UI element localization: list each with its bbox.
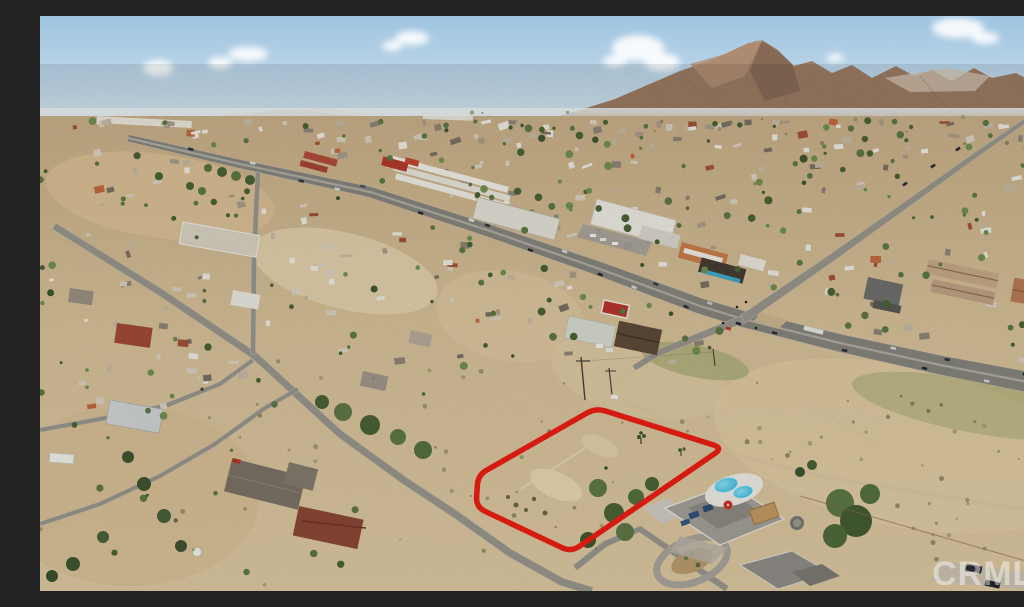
watermark-text: CRMLS [932,557,1024,591]
aerial-photo-canvas [40,16,1024,591]
film-grain [40,112,1024,591]
aerial-photo: CRMLS [40,16,1024,591]
